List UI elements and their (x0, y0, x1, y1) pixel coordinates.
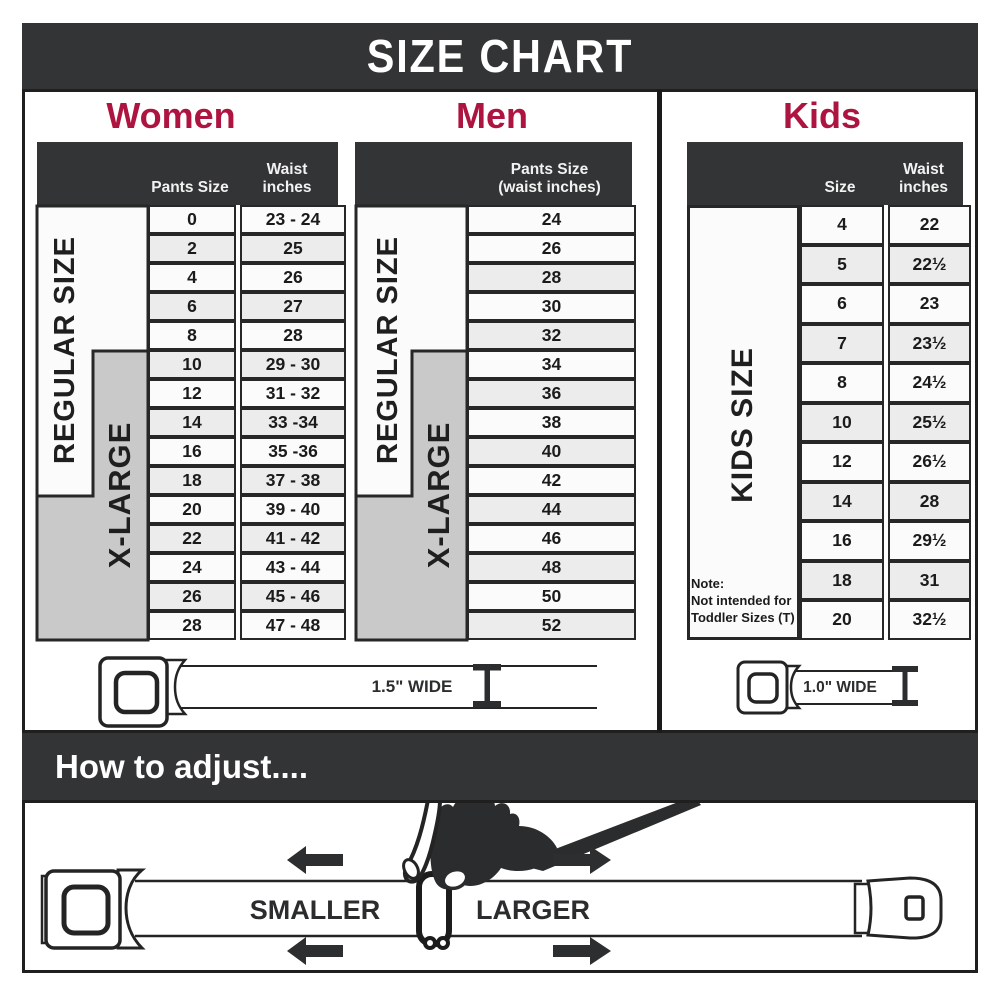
waist-cell: 41 - 42 (240, 524, 346, 553)
size-cell: 14 (800, 482, 884, 522)
arrow-left-icon (287, 937, 343, 965)
table-row: 1428 (687, 482, 963, 522)
size-cell: 28 (148, 611, 236, 640)
size-cell: 0 (148, 205, 236, 234)
row-label-spacer (355, 466, 467, 495)
size-cell: 50 (467, 582, 636, 611)
size-cell: 52 (467, 611, 636, 640)
section-divider (657, 89, 662, 733)
table-row: 2443 - 44 (37, 553, 338, 582)
row-label-spacer (37, 524, 148, 553)
size-cell: 18 (148, 466, 236, 495)
waist-cell: 32½ (888, 600, 971, 640)
size-cell: 32 (467, 321, 636, 350)
size-cell: 6 (800, 284, 884, 324)
hand-icon (401, 803, 701, 892)
kids-heading: Kids (722, 95, 922, 137)
waist-cell: 47 - 48 (240, 611, 346, 640)
table-row: 1837 - 38 (37, 466, 338, 495)
adjust-heading: How to adjust.... (22, 733, 978, 800)
row-label-spacer (37, 408, 148, 437)
size-cell: 34 (467, 350, 636, 379)
table-row: 44 (355, 495, 632, 524)
row-label-spacer (37, 437, 148, 466)
arrow-left-icon (287, 846, 343, 874)
table-row: 1635 -36 (37, 437, 338, 466)
belt-tongue-icon (855, 878, 941, 938)
row-label-spacer (687, 205, 800, 245)
table-row: 34 (355, 350, 632, 379)
waist-cell: 24½ (888, 363, 971, 403)
row-label-spacer (687, 363, 800, 403)
table-row: 1029 - 30 (37, 350, 338, 379)
table-row: 1629½ (687, 521, 963, 561)
size-cell: 4 (148, 263, 236, 292)
size-cell: 16 (800, 521, 884, 561)
arrow-right-icon (553, 937, 611, 965)
table-row: 1433 -34 (37, 408, 338, 437)
row-label-spacer (355, 408, 467, 437)
table-row: 522½ (687, 245, 963, 285)
page-title: SIZE CHART (367, 29, 633, 83)
size-cell: 12 (148, 379, 236, 408)
table-row: 2032½ (687, 600, 963, 640)
waist-cell: 28 (240, 321, 346, 350)
row-label-spacer (37, 350, 148, 379)
size-cell: 8 (148, 321, 236, 350)
adjust-illustration (25, 803, 975, 970)
waist-cell: 25 (240, 234, 346, 263)
women-table-header: Pants Size Waist inches (37, 142, 338, 205)
men-size-header: Pants Size (waist inches) (467, 161, 632, 198)
row-label-spacer (355, 524, 467, 553)
row-label-spacer (687, 600, 800, 640)
kids-waist-header: Waist inches (884, 161, 963, 198)
size-cell: 38 (467, 408, 636, 437)
waist-cell: 39 - 40 (240, 495, 346, 524)
size-cell: 26 (148, 582, 236, 611)
table-row: 824½ (687, 363, 963, 403)
table-row: 48 (355, 553, 632, 582)
table-row: 1831 (687, 561, 963, 601)
size-cell: 20 (148, 495, 236, 524)
table-row: 32 (355, 321, 632, 350)
row-label-spacer (37, 234, 148, 263)
row-label-spacer (355, 495, 467, 524)
size-cell: 24 (467, 205, 636, 234)
table-row: 52 (355, 611, 632, 640)
size-chart-page: SIZE CHART Women Men Kids Pants Size Wai… (0, 0, 1000, 1000)
row-label-spacer (37, 263, 148, 292)
table-row: 40 (355, 437, 632, 466)
row-label-spacer (355, 379, 467, 408)
size-cell: 40 (467, 437, 636, 466)
men-table-rows: 242628303234363840424446485052 (355, 205, 632, 640)
table-row: 28 (355, 263, 632, 292)
kids-width-gauge-icon (892, 666, 918, 706)
title-bar: SIZE CHART (22, 23, 978, 89)
table-row: 2847 - 48 (37, 611, 338, 640)
row-label-spacer (687, 482, 800, 522)
kids-size-header: Size (800, 179, 880, 198)
size-cell: 8 (800, 363, 884, 403)
waist-cell: 31 - 32 (240, 379, 346, 408)
row-label-spacer (37, 321, 148, 350)
waist-cell: 22 (888, 205, 971, 245)
table-row: 36 (355, 379, 632, 408)
women-table-rows: 023 - 242254266278281029 - 301231 - 3214… (37, 205, 338, 640)
women-waist-header: Waist inches (236, 161, 338, 198)
waist-cell: 23½ (888, 324, 971, 364)
row-label-spacer (37, 205, 148, 234)
size-cell: 14 (148, 408, 236, 437)
table-row: 2645 - 46 (37, 582, 338, 611)
row-label-spacer (687, 561, 800, 601)
table-row: 2039 - 40 (37, 495, 338, 524)
waist-cell: 26½ (888, 442, 971, 482)
table-row: 225 (37, 234, 338, 263)
row-label-spacer (37, 495, 148, 524)
row-label-spacer (687, 403, 800, 443)
waist-cell: 29½ (888, 521, 971, 561)
waist-cell: 35 -36 (240, 437, 346, 466)
table-row: 723½ (687, 324, 963, 364)
size-cell: 42 (467, 466, 636, 495)
kids-belt-width-label: 1.0" WIDE (788, 678, 892, 698)
size-cell: 18 (800, 561, 884, 601)
adult-belt-illustration (90, 652, 610, 732)
waist-cell: 45 - 46 (240, 582, 346, 611)
size-cell: 44 (467, 495, 636, 524)
size-cell: 36 (467, 379, 636, 408)
waist-cell: 23 - 24 (240, 205, 346, 234)
waist-cell: 25½ (888, 403, 971, 443)
waist-cell: 26 (240, 263, 346, 292)
table-row: 1231 - 32 (37, 379, 338, 408)
women-heading: Women (71, 95, 271, 137)
row-label-spacer (37, 379, 148, 408)
table-row: 828 (37, 321, 338, 350)
row-label-spacer (355, 292, 467, 321)
row-label-spacer (355, 350, 467, 379)
size-cell: 46 (467, 524, 636, 553)
table-row: 1025½ (687, 403, 963, 443)
row-label-spacer (355, 263, 467, 292)
table-row: 30 (355, 292, 632, 321)
men-table-header: Pants Size (waist inches) (355, 142, 632, 205)
table-row: 38 (355, 408, 632, 437)
row-label-spacer (37, 466, 148, 495)
size-cell: 48 (467, 553, 636, 582)
waist-cell: 29 - 30 (240, 350, 346, 379)
row-label-spacer (355, 205, 467, 234)
size-cell: 16 (148, 437, 236, 466)
table-row: 422 (687, 205, 963, 245)
row-label-spacer (37, 553, 148, 582)
row-label-spacer (355, 321, 467, 350)
table-row: 50 (355, 582, 632, 611)
kids-table-rows: 422522½623723½824½1025½1226½14281629½183… (687, 205, 963, 640)
size-cell: 20 (800, 600, 884, 640)
smaller-label: SMALLER (240, 895, 390, 925)
row-label-spacer (355, 234, 467, 263)
waist-cell: 33 -34 (240, 408, 346, 437)
waist-cell: 31 (888, 561, 971, 601)
size-cell: 24 (148, 553, 236, 582)
row-label-spacer (355, 553, 467, 582)
kids-table-header: Size Waist inches (687, 142, 963, 205)
size-cell: 26 (467, 234, 636, 263)
adjust-buckle-icon (42, 870, 142, 948)
size-cell: 6 (148, 292, 236, 321)
table-row: 627 (37, 292, 338, 321)
row-label-spacer (687, 324, 800, 364)
larger-label: LARGER (458, 895, 608, 925)
table-row: 623 (687, 284, 963, 324)
size-cell: 10 (148, 350, 236, 379)
adult-belt-width-label: 1.5" WIDE (358, 676, 466, 698)
row-label-spacer (355, 582, 467, 611)
size-cell: 4 (800, 205, 884, 245)
men-heading: Men (392, 95, 592, 137)
row-label-spacer (687, 442, 800, 482)
table-row: 426 (37, 263, 338, 292)
row-label-spacer (355, 611, 467, 640)
row-label-spacer (37, 582, 148, 611)
waist-cell: 23 (888, 284, 971, 324)
table-row: 023 - 24 (37, 205, 338, 234)
row-label-spacer (687, 245, 800, 285)
table-row: 2241 - 42 (37, 524, 338, 553)
size-cell: 22 (148, 524, 236, 553)
waist-cell: 43 - 44 (240, 553, 346, 582)
row-label-spacer (37, 292, 148, 321)
waist-cell: 37 - 38 (240, 466, 346, 495)
table-row: 26 (355, 234, 632, 263)
row-label-spacer (687, 521, 800, 561)
size-cell: 7 (800, 324, 884, 364)
row-label-spacer (37, 611, 148, 640)
row-label-spacer (355, 437, 467, 466)
size-cell: 12 (800, 442, 884, 482)
table-row: 24 (355, 205, 632, 234)
size-cell: 28 (467, 263, 636, 292)
row-label-spacer (687, 284, 800, 324)
size-cell: 30 (467, 292, 636, 321)
women-size-header: Pants Size (148, 179, 232, 198)
size-cell: 10 (800, 403, 884, 443)
waist-cell: 28 (888, 482, 971, 522)
waist-cell: 22½ (888, 245, 971, 285)
size-cell: 5 (800, 245, 884, 285)
table-row: 46 (355, 524, 632, 553)
table-row: 1226½ (687, 442, 963, 482)
size-cell: 2 (148, 234, 236, 263)
table-row: 42 (355, 466, 632, 495)
waist-cell: 27 (240, 292, 346, 321)
